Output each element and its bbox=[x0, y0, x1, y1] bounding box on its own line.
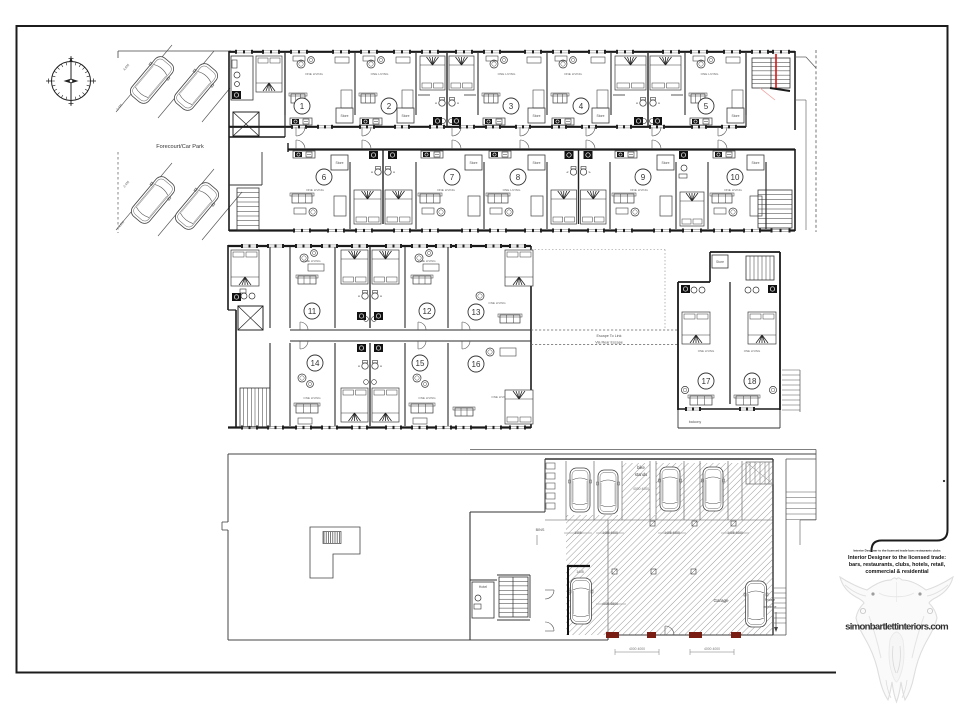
svg-text:»: » bbox=[588, 170, 591, 175]
svg-text:Store: Store bbox=[596, 114, 604, 118]
svg-text:Private: Private bbox=[765, 598, 775, 602]
svg-text:Via Rear Escape: Via Rear Escape bbox=[595, 341, 623, 345]
svg-text:ONE LIVING: ONE LIVING bbox=[564, 72, 582, 76]
svg-text:3: 3 bbox=[509, 102, 514, 111]
svg-text:ONE LIVING: ONE LIVING bbox=[418, 396, 436, 400]
svg-text:4.8M: 4.8M bbox=[117, 220, 125, 228]
svg-text:9: 9 bbox=[641, 173, 646, 182]
svg-text:simonbartlettinteriors.com: simonbartlettinteriors.com bbox=[845, 622, 948, 633]
svg-text:Store: Store bbox=[469, 161, 477, 165]
svg-text:8: 8 bbox=[516, 173, 521, 182]
svg-text:«: « bbox=[566, 170, 569, 175]
svg-text:Store: Store bbox=[532, 114, 540, 118]
svg-text:Store: Store bbox=[751, 161, 759, 165]
svg-text:10: 10 bbox=[731, 173, 740, 182]
svg-text:1405: 1405 bbox=[576, 570, 584, 574]
svg-text:stands: stands bbox=[635, 472, 647, 477]
svg-text:Store: Store bbox=[716, 260, 724, 264]
svg-text:«: « bbox=[636, 101, 639, 106]
svg-text:ONE LIVING: ONE LIVING bbox=[503, 188, 521, 192]
svg-text:Interior Designer to the licen: Interior Designer to the licensed trade … bbox=[853, 549, 940, 553]
svg-text:Hotel: Hotel bbox=[479, 585, 488, 589]
svg-text:ONE LIVING: ONE LIVING bbox=[371, 72, 389, 76]
svg-text:«: « bbox=[358, 364, 361, 369]
svg-text:»: » bbox=[658, 101, 661, 106]
svg-text:ONE LIVING: ONE LIVING bbox=[418, 259, 436, 263]
svg-text:ONE LIVING: ONE LIVING bbox=[303, 396, 321, 400]
svg-text:16: 16 bbox=[472, 360, 481, 369]
svg-text:Store: Store bbox=[401, 114, 409, 118]
svg-text:ONE LIVING: ONE LIVING bbox=[488, 301, 506, 305]
svg-text:4000 4000: 4000 4000 bbox=[633, 487, 649, 491]
svg-text:18: 18 bbox=[748, 377, 757, 386]
svg-text:14: 14 bbox=[311, 359, 320, 368]
svg-text:Garage: Garage bbox=[713, 598, 729, 603]
svg-text:Store: Store bbox=[335, 161, 343, 165]
svg-text:bike: bike bbox=[637, 465, 645, 470]
svg-text:Store: Store bbox=[731, 114, 739, 118]
svg-text:Store: Store bbox=[340, 114, 348, 118]
svg-text:ONE LIVING: ONE LIVING bbox=[498, 72, 516, 76]
svg-text:15: 15 bbox=[416, 359, 425, 368]
svg-text:1: 1 bbox=[300, 102, 305, 111]
svg-text:4.8M: 4.8M bbox=[122, 63, 130, 71]
svg-text:»: » bbox=[393, 170, 396, 175]
svg-text:Escape To Link: Escape To Link bbox=[597, 334, 622, 338]
svg-text:bars, restaurants, clubs, hote: bars, restaurants, clubs, hotels, retail… bbox=[849, 562, 946, 568]
svg-text:ONE LIVING: ONE LIVING bbox=[303, 259, 321, 263]
svg-text:2: 2 bbox=[387, 102, 392, 111]
svg-text:ONE LIVING: ONE LIVING bbox=[437, 188, 455, 192]
svg-text:11: 11 bbox=[308, 307, 317, 316]
svg-text:Store: Store bbox=[532, 161, 540, 165]
svg-text:ONE LIVING: ONE LIVING bbox=[724, 188, 742, 192]
svg-text:«: « bbox=[435, 101, 438, 106]
svg-text:ONE LIVING: ONE LIVING bbox=[701, 72, 719, 76]
svg-text:«: « bbox=[358, 294, 361, 299]
svg-text:BINS: BINS bbox=[536, 528, 545, 532]
svg-text:entrance: entrance bbox=[764, 605, 777, 609]
svg-text:5: 5 bbox=[704, 102, 709, 111]
svg-text:»: » bbox=[380, 294, 383, 299]
svg-text:2.4M: 2.4M bbox=[122, 180, 130, 188]
svg-text:4000 4000: 4000 4000 bbox=[704, 647, 720, 651]
svg-text:12: 12 bbox=[423, 307, 432, 316]
svg-text:«: « bbox=[371, 170, 374, 175]
svg-text:4: 4 bbox=[579, 102, 584, 111]
svg-text:17: 17 bbox=[702, 377, 711, 386]
svg-text:ONE LIVING: ONE LIVING bbox=[306, 188, 324, 192]
svg-text:balcony: balcony bbox=[689, 420, 702, 424]
svg-text:6: 6 bbox=[322, 173, 327, 182]
svg-text:7: 7 bbox=[450, 173, 455, 182]
svg-text:4000 4000: 4000 4000 bbox=[629, 647, 645, 651]
svg-text:Interior Designer to the licen: Interior Designer to the licensed trade: bbox=[848, 555, 946, 561]
svg-text:ONE LIVING: ONE LIVING bbox=[744, 349, 761, 353]
svg-text:ONE LIVING: ONE LIVING bbox=[698, 349, 715, 353]
svg-text:Forecourt/Car Park: Forecourt/Car Park bbox=[156, 144, 204, 150]
svg-text:ONE LIVING: ONE LIVING bbox=[630, 188, 648, 192]
svg-text:Store: Store bbox=[661, 161, 669, 165]
svg-text:»: » bbox=[380, 364, 383, 369]
svg-text:13: 13 bbox=[472, 308, 481, 317]
svg-text:ONE LIVING: ONE LIVING bbox=[305, 72, 323, 76]
svg-text:commercial & residential: commercial & residential bbox=[865, 569, 929, 575]
svg-text:»: » bbox=[457, 101, 460, 106]
